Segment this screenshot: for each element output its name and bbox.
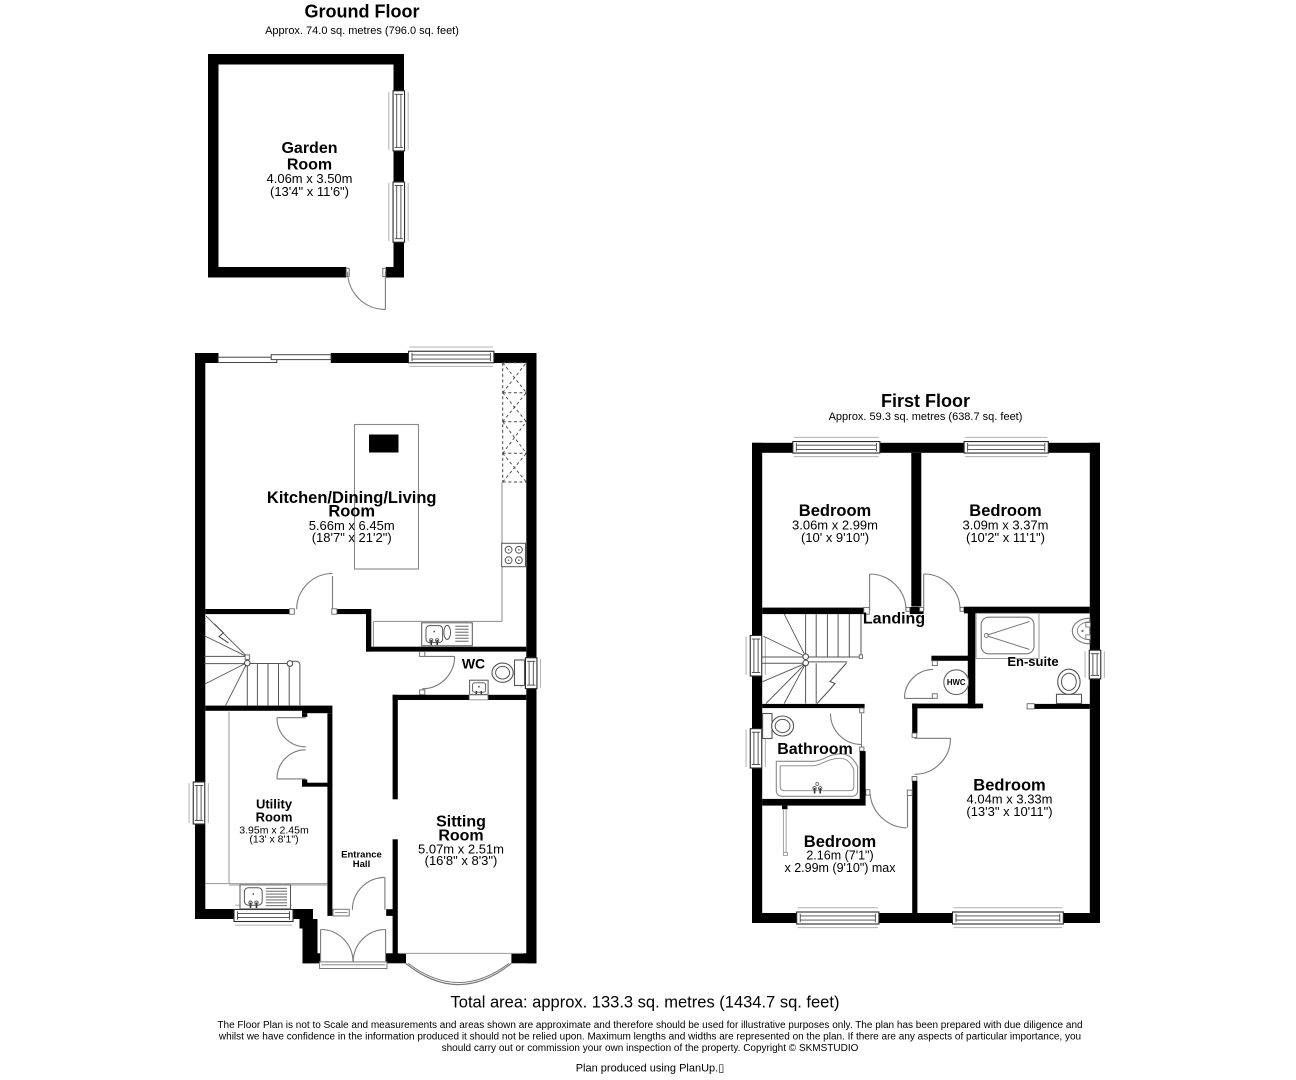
svg-text:whilst we have confidence in t: whilst we have confidence in the informa… (218, 1032, 1081, 1043)
svg-text:x 2.99m (9'10") max: x 2.99m (9'10") max (784, 861, 896, 875)
svg-text:should carry out or commission: should carry out or commission your own … (442, 1043, 859, 1054)
svg-text:(13' x 8'1"): (13' x 8'1") (249, 834, 298, 846)
svg-text:The Floor Plan is not to Scale: The Floor Plan is not to Scale and measu… (217, 1020, 1082, 1031)
svg-text:Plan produced using PlanUp.▯: Plan produced using PlanUp.▯ (576, 1063, 725, 1075)
svg-text:(16'8" x 8'3"): (16'8" x 8'3") (425, 853, 498, 868)
svg-text:Room: Room (256, 810, 293, 825)
svg-text:Approx. 74.0 sq. metres (796.0: Approx. 74.0 sq. metres (796.0 sq. feet) (265, 25, 459, 37)
svg-text:(18'7" x 21'2"): (18'7" x 21'2") (312, 530, 392, 545)
svg-text:En-suite: En-suite (1007, 654, 1058, 669)
svg-text:(10' x 9'10"): (10' x 9'10") (801, 530, 869, 545)
svg-text:Garden: Garden (281, 140, 337, 157)
svg-text:Landing: Landing (863, 610, 925, 627)
svg-text:Hall: Hall (353, 859, 370, 870)
svg-text:HWC: HWC (947, 678, 966, 687)
svg-text:Ground Floor: Ground Floor (305, 2, 420, 22)
svg-text:Total area: approx. 133.3 sq.: Total area: approx. 133.3 sq. metres (14… (451, 994, 840, 1012)
svg-text:First Floor: First Floor (881, 391, 970, 411)
svg-text:Bathroom: Bathroom (777, 741, 853, 758)
svg-text:(13'3" x 10'11"): (13'3" x 10'11") (966, 804, 1052, 819)
svg-text:(13'4" x 11'6"): (13'4" x 11'6") (270, 184, 349, 199)
svg-text:WC: WC (462, 655, 485, 671)
svg-text:(10'2" x 11'1"): (10'2" x 11'1") (966, 530, 1045, 545)
svg-text:Approx. 59.3 sq. metres (638.7: Approx. 59.3 sq. metres (638.7 sq. feet) (829, 411, 1023, 423)
